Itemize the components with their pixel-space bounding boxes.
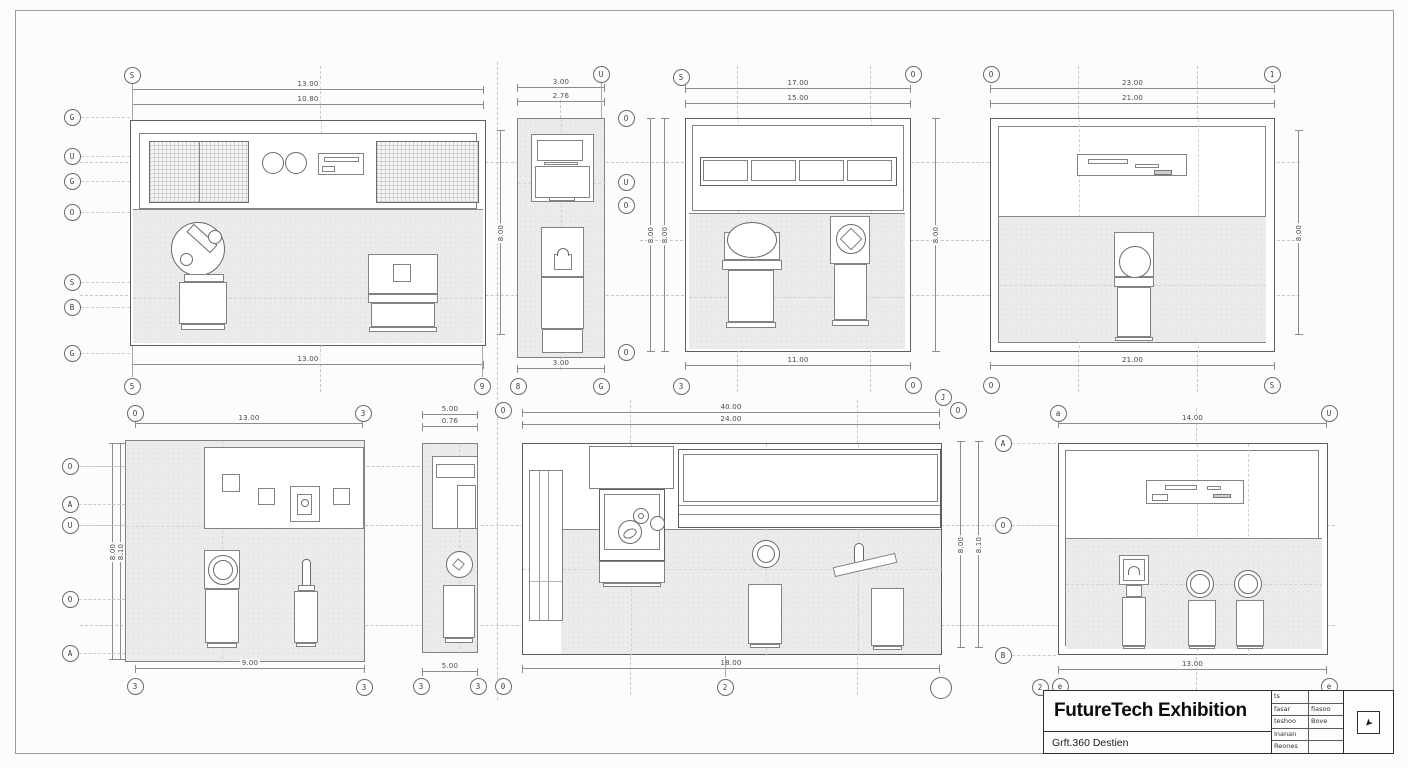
dimension: 9.00 xyxy=(135,668,365,669)
media-unit xyxy=(432,456,478,529)
grid-bubble: S xyxy=(64,274,81,291)
robot-joint xyxy=(180,253,193,266)
dimension: 15.00 xyxy=(685,103,911,104)
dimension: 18.00 xyxy=(522,668,940,669)
window-pane xyxy=(751,160,796,181)
table-cell: teshoo xyxy=(1272,716,1309,728)
grid-bubble: S xyxy=(124,67,141,84)
slat-line xyxy=(679,514,940,515)
pedestal xyxy=(1117,287,1151,337)
grid-bubble: 3 xyxy=(413,678,430,695)
grid-bubble: O xyxy=(995,517,1012,534)
grid-bubble: G xyxy=(593,378,610,395)
window-pane xyxy=(799,160,844,181)
table-cell: Reones xyxy=(1272,741,1309,753)
grid-bubble: a xyxy=(1050,405,1067,422)
grid-bubble: S xyxy=(1264,377,1281,394)
column-line xyxy=(539,471,540,620)
display-case xyxy=(541,227,584,277)
dim-label: 40.00 xyxy=(718,403,743,411)
dimension: 24.00 xyxy=(522,424,940,425)
exhibit-object xyxy=(554,254,572,270)
sign-slot xyxy=(1088,159,1128,164)
dimension: 8.00 xyxy=(112,443,113,660)
grid-bubble: U xyxy=(593,66,610,83)
dimension: 13.00 xyxy=(132,364,484,365)
bubble-leader xyxy=(81,181,130,182)
wall-frame xyxy=(258,488,275,505)
grid-bubble: A xyxy=(62,645,79,662)
table-row: ts xyxy=(1272,691,1343,704)
dimension: 23.00 xyxy=(990,88,1275,89)
dim-label: 8.10 xyxy=(117,541,125,561)
ring-inner xyxy=(1238,574,1258,594)
cursor-icon: ➤ xyxy=(1362,716,1376,730)
door-column xyxy=(529,470,563,621)
sign-chip xyxy=(1154,170,1172,175)
pedestal xyxy=(871,588,904,646)
sphere-exhibit xyxy=(446,551,473,578)
elevation-panel-b xyxy=(517,118,605,358)
signage-plate xyxy=(318,153,364,175)
grid-bubble: U xyxy=(64,148,81,165)
elevation-panel-h xyxy=(1058,443,1328,655)
grid-bubble: 3 xyxy=(673,378,690,395)
bubble-leader xyxy=(79,599,125,600)
window-pane xyxy=(847,160,892,181)
exhibit-frame xyxy=(830,216,870,264)
column-line xyxy=(548,471,549,620)
wall-frame xyxy=(333,488,350,505)
dim-label: 13.00 xyxy=(295,80,320,88)
dimension: 8.00 xyxy=(650,118,651,352)
dimension: 11.00 xyxy=(685,365,911,366)
wall-lower xyxy=(133,209,483,343)
title-block: FutureTech Exhibition Grft.360 Destien t… xyxy=(1043,690,1394,754)
pedestal-cap xyxy=(1126,585,1142,597)
table-cell xyxy=(1309,691,1343,703)
dome-exhibit xyxy=(1128,566,1140,575)
pedestal xyxy=(748,584,782,644)
grid-bubble: O xyxy=(618,344,635,361)
sign-chip xyxy=(1213,494,1231,498)
grid-bubble: O xyxy=(983,66,1000,83)
bubble-leader xyxy=(81,307,130,308)
dimension: 13.00 xyxy=(132,89,484,90)
sign-slot xyxy=(1135,164,1159,168)
exhibit-object xyxy=(393,264,411,282)
dim-label: 24.00 xyxy=(718,415,743,423)
dim-label: 8.00 xyxy=(497,222,505,242)
grid-bubble: 5 xyxy=(673,69,690,86)
dimension: 13.00 xyxy=(1058,669,1327,670)
dim-label: 8.00 xyxy=(1295,222,1303,242)
elevation-panel-f xyxy=(422,443,478,653)
wall-lower xyxy=(1066,538,1322,649)
slat-line xyxy=(679,505,940,506)
grid-bubble: O xyxy=(495,402,512,419)
bubble-stub xyxy=(132,346,133,377)
dimension: 8.00 xyxy=(935,118,936,352)
bottle-stand xyxy=(294,591,318,643)
bubble-leader xyxy=(81,212,130,213)
round-fixture xyxy=(285,152,307,174)
elevation-panel-g xyxy=(522,443,942,655)
pedestal xyxy=(1188,600,1216,646)
bubble-leader xyxy=(79,466,125,467)
round-fixture xyxy=(262,152,284,174)
grid-bubble: O xyxy=(618,110,635,127)
grid-bubble: G xyxy=(64,109,81,126)
table-cell: Inanan xyxy=(1272,729,1309,741)
grid-bubble: 2 xyxy=(717,679,734,696)
display-shelf xyxy=(368,294,438,303)
dimension: 14.00 xyxy=(1058,423,1327,424)
pedestal-base xyxy=(542,329,583,353)
dimension: 40.00 xyxy=(522,412,940,413)
grid-bubble: O xyxy=(905,66,922,83)
grid-bubble: U xyxy=(618,174,635,191)
pedestal xyxy=(834,264,867,320)
exhibit-detail xyxy=(622,526,638,540)
dim-label: 0.76 xyxy=(440,417,460,425)
dim-label: 18.00 xyxy=(718,659,743,667)
exhibit-object xyxy=(452,558,465,571)
dimension: 3.00 xyxy=(517,87,605,88)
egg-exhibit xyxy=(727,222,777,258)
pedestal xyxy=(1236,600,1264,646)
grid-bubble: O xyxy=(64,204,81,221)
mesh-screen-panel xyxy=(149,141,249,203)
grid-bubble: B xyxy=(64,299,81,316)
sign-slot xyxy=(1207,486,1221,490)
grid-centerline xyxy=(497,62,498,700)
porthole-inner xyxy=(213,560,233,580)
media-unit xyxy=(531,134,594,202)
dimension: 8.00 xyxy=(500,130,501,335)
side-panel xyxy=(457,485,476,529)
bubble-leader xyxy=(1012,443,1056,444)
grid-bubble: O xyxy=(950,402,967,419)
pedestal-base xyxy=(603,583,661,587)
grid-bubble: A xyxy=(62,496,79,513)
dim-label: 13.00 xyxy=(1180,660,1205,668)
wall-lower xyxy=(689,213,905,349)
dim-label: 13.00 xyxy=(295,355,320,363)
case-pedestal xyxy=(599,561,665,583)
long-lightbox xyxy=(678,449,941,528)
pedestal-base xyxy=(832,320,869,326)
dim-label: 23.00 xyxy=(1120,79,1145,87)
grid-bubble: O xyxy=(62,458,79,475)
pedestal xyxy=(1122,597,1146,646)
table-row: teshoo Bove xyxy=(1272,716,1343,729)
dimension: 21.00 xyxy=(990,365,1275,366)
porthole-ring xyxy=(752,540,780,568)
table-row: fasar fiasoo xyxy=(1272,704,1343,717)
dim-label: 15.00 xyxy=(785,94,810,102)
wall-lower xyxy=(999,216,1266,342)
dim-label: 3.00 xyxy=(551,78,571,86)
pedestal-cap xyxy=(184,274,224,282)
display-case xyxy=(368,254,438,294)
stand-base xyxy=(296,643,316,647)
pedestal-base xyxy=(1123,646,1145,649)
dim-label: 17.00 xyxy=(785,79,810,87)
pedestal-base xyxy=(1237,646,1263,649)
pedestal xyxy=(728,270,774,322)
grid-bubble: O xyxy=(618,197,635,214)
dimension: 3.00 xyxy=(517,368,605,369)
dimension: 2.76 xyxy=(517,101,605,102)
lightbox-glass xyxy=(683,454,938,502)
elevation-panel-a xyxy=(130,120,486,346)
grid-bubble: O xyxy=(127,405,144,422)
pedestal-base xyxy=(1189,646,1215,649)
pedestal-base xyxy=(873,646,902,650)
wall-frame xyxy=(222,474,240,492)
title-block-right: ➤ xyxy=(1344,691,1393,753)
dim-label: 5.00 xyxy=(440,405,460,413)
ring-exhibit xyxy=(1234,570,1262,598)
dim-label: 10.80 xyxy=(295,95,320,103)
centerline xyxy=(689,297,905,298)
robot-arm-disc xyxy=(171,222,225,276)
bubble-leader xyxy=(79,525,125,526)
dim-label: 2.76 xyxy=(551,92,571,100)
dimension: 13.00 xyxy=(135,423,363,424)
bubble-leader xyxy=(81,282,130,283)
elevation-panel-c xyxy=(685,118,911,352)
bubble-leader xyxy=(81,117,130,118)
sign-slot xyxy=(324,157,359,162)
sign-slot xyxy=(1165,485,1197,490)
dim-label: 8.10 xyxy=(975,534,983,554)
drawing-sheet: 13.00 10.80 13.00 8.00 3.00 2.76 3.00 8.… xyxy=(0,0,1408,768)
exhibit-frame xyxy=(1119,555,1149,585)
table-cell: ts xyxy=(1272,691,1309,703)
table-cell: fasar xyxy=(1272,704,1309,716)
grid-bubble: O xyxy=(62,591,79,608)
dimension: 10.80 xyxy=(132,104,484,105)
dimension: 8.00 xyxy=(664,118,665,352)
sheet-subtitle: Grft.360 Destien xyxy=(1044,732,1271,753)
elevation-panel-d xyxy=(990,118,1275,352)
exhibit-ring xyxy=(650,516,665,531)
grid-bubble: 5 xyxy=(124,378,141,395)
dimension: 17.00 xyxy=(685,88,911,89)
pedestal xyxy=(541,277,584,329)
table-cell: fiasoo xyxy=(1309,704,1343,716)
grid-bubble: G xyxy=(64,345,81,362)
signage-plate xyxy=(1077,154,1187,176)
display-case xyxy=(1114,232,1154,277)
dimension: 21.00 xyxy=(990,103,1275,104)
dim-label: 21.00 xyxy=(1120,94,1145,102)
shelf-bar xyxy=(544,162,578,165)
dim-label: 3.00 xyxy=(551,359,571,367)
bottle-neck xyxy=(302,559,311,586)
gallery-wall xyxy=(204,447,364,529)
display-case xyxy=(599,489,665,561)
bubble-stub xyxy=(132,84,133,120)
display-shelf xyxy=(722,260,782,270)
dimension: 5.00 xyxy=(422,671,478,672)
signage-plate xyxy=(1146,480,1244,504)
dim-label: 8.00 xyxy=(647,225,655,245)
pedestal-base xyxy=(750,644,780,648)
monitor xyxy=(537,140,583,161)
grid-bubble-empty xyxy=(930,677,952,699)
centerline xyxy=(523,569,943,570)
dimension: 8.00 xyxy=(960,441,961,648)
grid-bubble: U xyxy=(62,517,79,534)
table-cell xyxy=(1309,729,1343,741)
pedestal xyxy=(205,589,239,643)
pedestal-base xyxy=(181,324,225,330)
ring-inner xyxy=(1190,574,1210,594)
bubble-stub xyxy=(601,83,602,118)
pedestal xyxy=(179,282,227,324)
sign-chip xyxy=(1152,494,1168,501)
dim-label: 14.00 xyxy=(1180,414,1205,422)
dimension: 5.00 xyxy=(422,414,478,415)
grid-bubble: 3 xyxy=(355,405,372,422)
pedestal-base xyxy=(207,643,237,648)
dim-label: 9.00 xyxy=(240,659,260,667)
ring-exhibit xyxy=(1186,570,1214,598)
dimension: 8.00 xyxy=(1298,130,1299,335)
pedestal-base xyxy=(445,638,473,643)
dim-label: 8.00 xyxy=(661,225,669,245)
exhibit-ring xyxy=(618,520,642,544)
robot-joint xyxy=(208,230,222,244)
mesh-screen-panel xyxy=(376,141,479,203)
display-base xyxy=(369,327,437,332)
table-cell: Bove xyxy=(1309,716,1343,728)
grid-bubble: A xyxy=(995,435,1012,452)
grid-bubble: B xyxy=(995,647,1012,664)
display-body xyxy=(371,303,435,327)
dim-label: 11.00 xyxy=(785,356,810,364)
sheet-title: FutureTech Exhibition xyxy=(1044,691,1271,732)
title-block-left: FutureTech Exhibition Grft.360 Destien xyxy=(1044,691,1272,753)
porthole-inner xyxy=(757,545,775,563)
grid-bubble: O xyxy=(905,377,922,394)
grid-bubble: 3 xyxy=(127,678,144,695)
framed-artwork xyxy=(290,486,320,522)
mesh-divider xyxy=(199,142,200,202)
bubble-leader xyxy=(79,504,125,505)
dim-label: 13.00 xyxy=(236,414,261,422)
display-shelf xyxy=(1114,277,1154,287)
window-strip xyxy=(700,157,897,186)
dim-label: 5.00 xyxy=(440,662,460,670)
pedestal xyxy=(443,585,475,638)
dimension: 8.10 xyxy=(120,443,121,660)
bubble-leader xyxy=(81,353,130,354)
sphere-exhibit xyxy=(1119,246,1151,278)
column-line xyxy=(530,581,562,582)
exhibit-dome xyxy=(557,248,569,256)
sign-bar xyxy=(436,464,475,478)
header-box xyxy=(589,446,674,489)
screen-box xyxy=(535,166,590,198)
bubble-stub xyxy=(725,656,726,677)
grid-bubble: J xyxy=(935,389,952,406)
unit-base xyxy=(549,197,575,201)
exhibit-dot xyxy=(638,513,644,519)
table-cell xyxy=(1309,741,1343,753)
bubble-leader xyxy=(79,653,125,654)
porthole-cabinet xyxy=(204,550,240,589)
grid-bubble: 9 xyxy=(474,378,491,395)
grid-bubble: G xyxy=(64,173,81,190)
sign-chip xyxy=(322,166,335,172)
pedestal-base xyxy=(1115,337,1153,341)
cursor-box: ➤ xyxy=(1357,711,1380,734)
grid-bubble: 3 xyxy=(470,678,487,695)
grid-bubble: U xyxy=(1321,405,1338,422)
grid-bubble: 1 xyxy=(1264,66,1281,83)
bubble-stub xyxy=(482,346,483,377)
dim-label: 8.00 xyxy=(932,225,940,245)
dim-label: 8.00 xyxy=(109,541,117,561)
grid-bubble: 3 xyxy=(356,679,373,696)
grid-bubble: O xyxy=(983,377,1000,394)
window-pane xyxy=(703,160,748,181)
dimension: 0.76 xyxy=(422,426,478,427)
dim-label: 21.00 xyxy=(1120,356,1145,364)
elevation-panel-e xyxy=(125,440,365,662)
table-row: Inanan xyxy=(1272,729,1343,742)
bubble-leader xyxy=(81,156,130,157)
dim-label: 8.00 xyxy=(957,534,965,554)
grid-bubble: 8 xyxy=(510,378,527,395)
revision-table: ts fasar fiasoo teshoo Bove Inanan Reone… xyxy=(1272,691,1344,753)
bubble-leader xyxy=(1012,655,1056,656)
artwork-detail xyxy=(301,499,309,507)
dimension: 8.10 xyxy=(978,441,979,648)
pedestal-base xyxy=(726,322,776,328)
grid-bubble: 0 xyxy=(495,678,512,695)
table-row: Reones xyxy=(1272,741,1343,753)
bubble-leader xyxy=(1012,525,1056,526)
